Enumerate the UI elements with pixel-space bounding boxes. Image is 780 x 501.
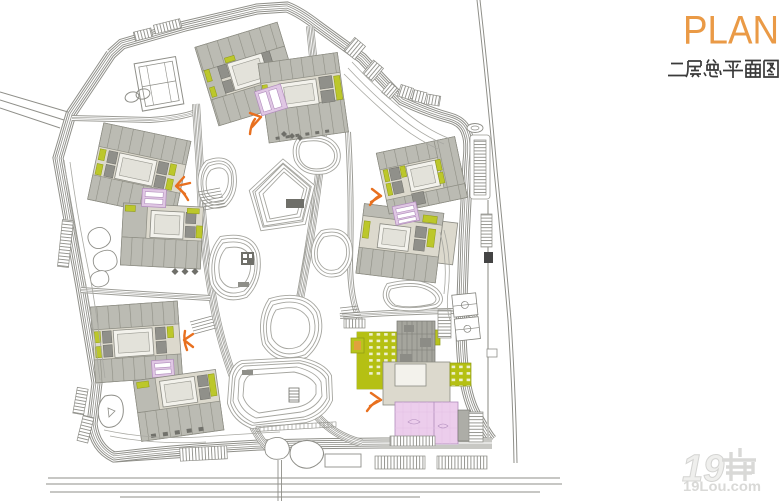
svg-text:PLAN: PLAN: [683, 9, 779, 53]
svg-text:19Lou.com: 19Lou.com: [683, 478, 761, 494]
